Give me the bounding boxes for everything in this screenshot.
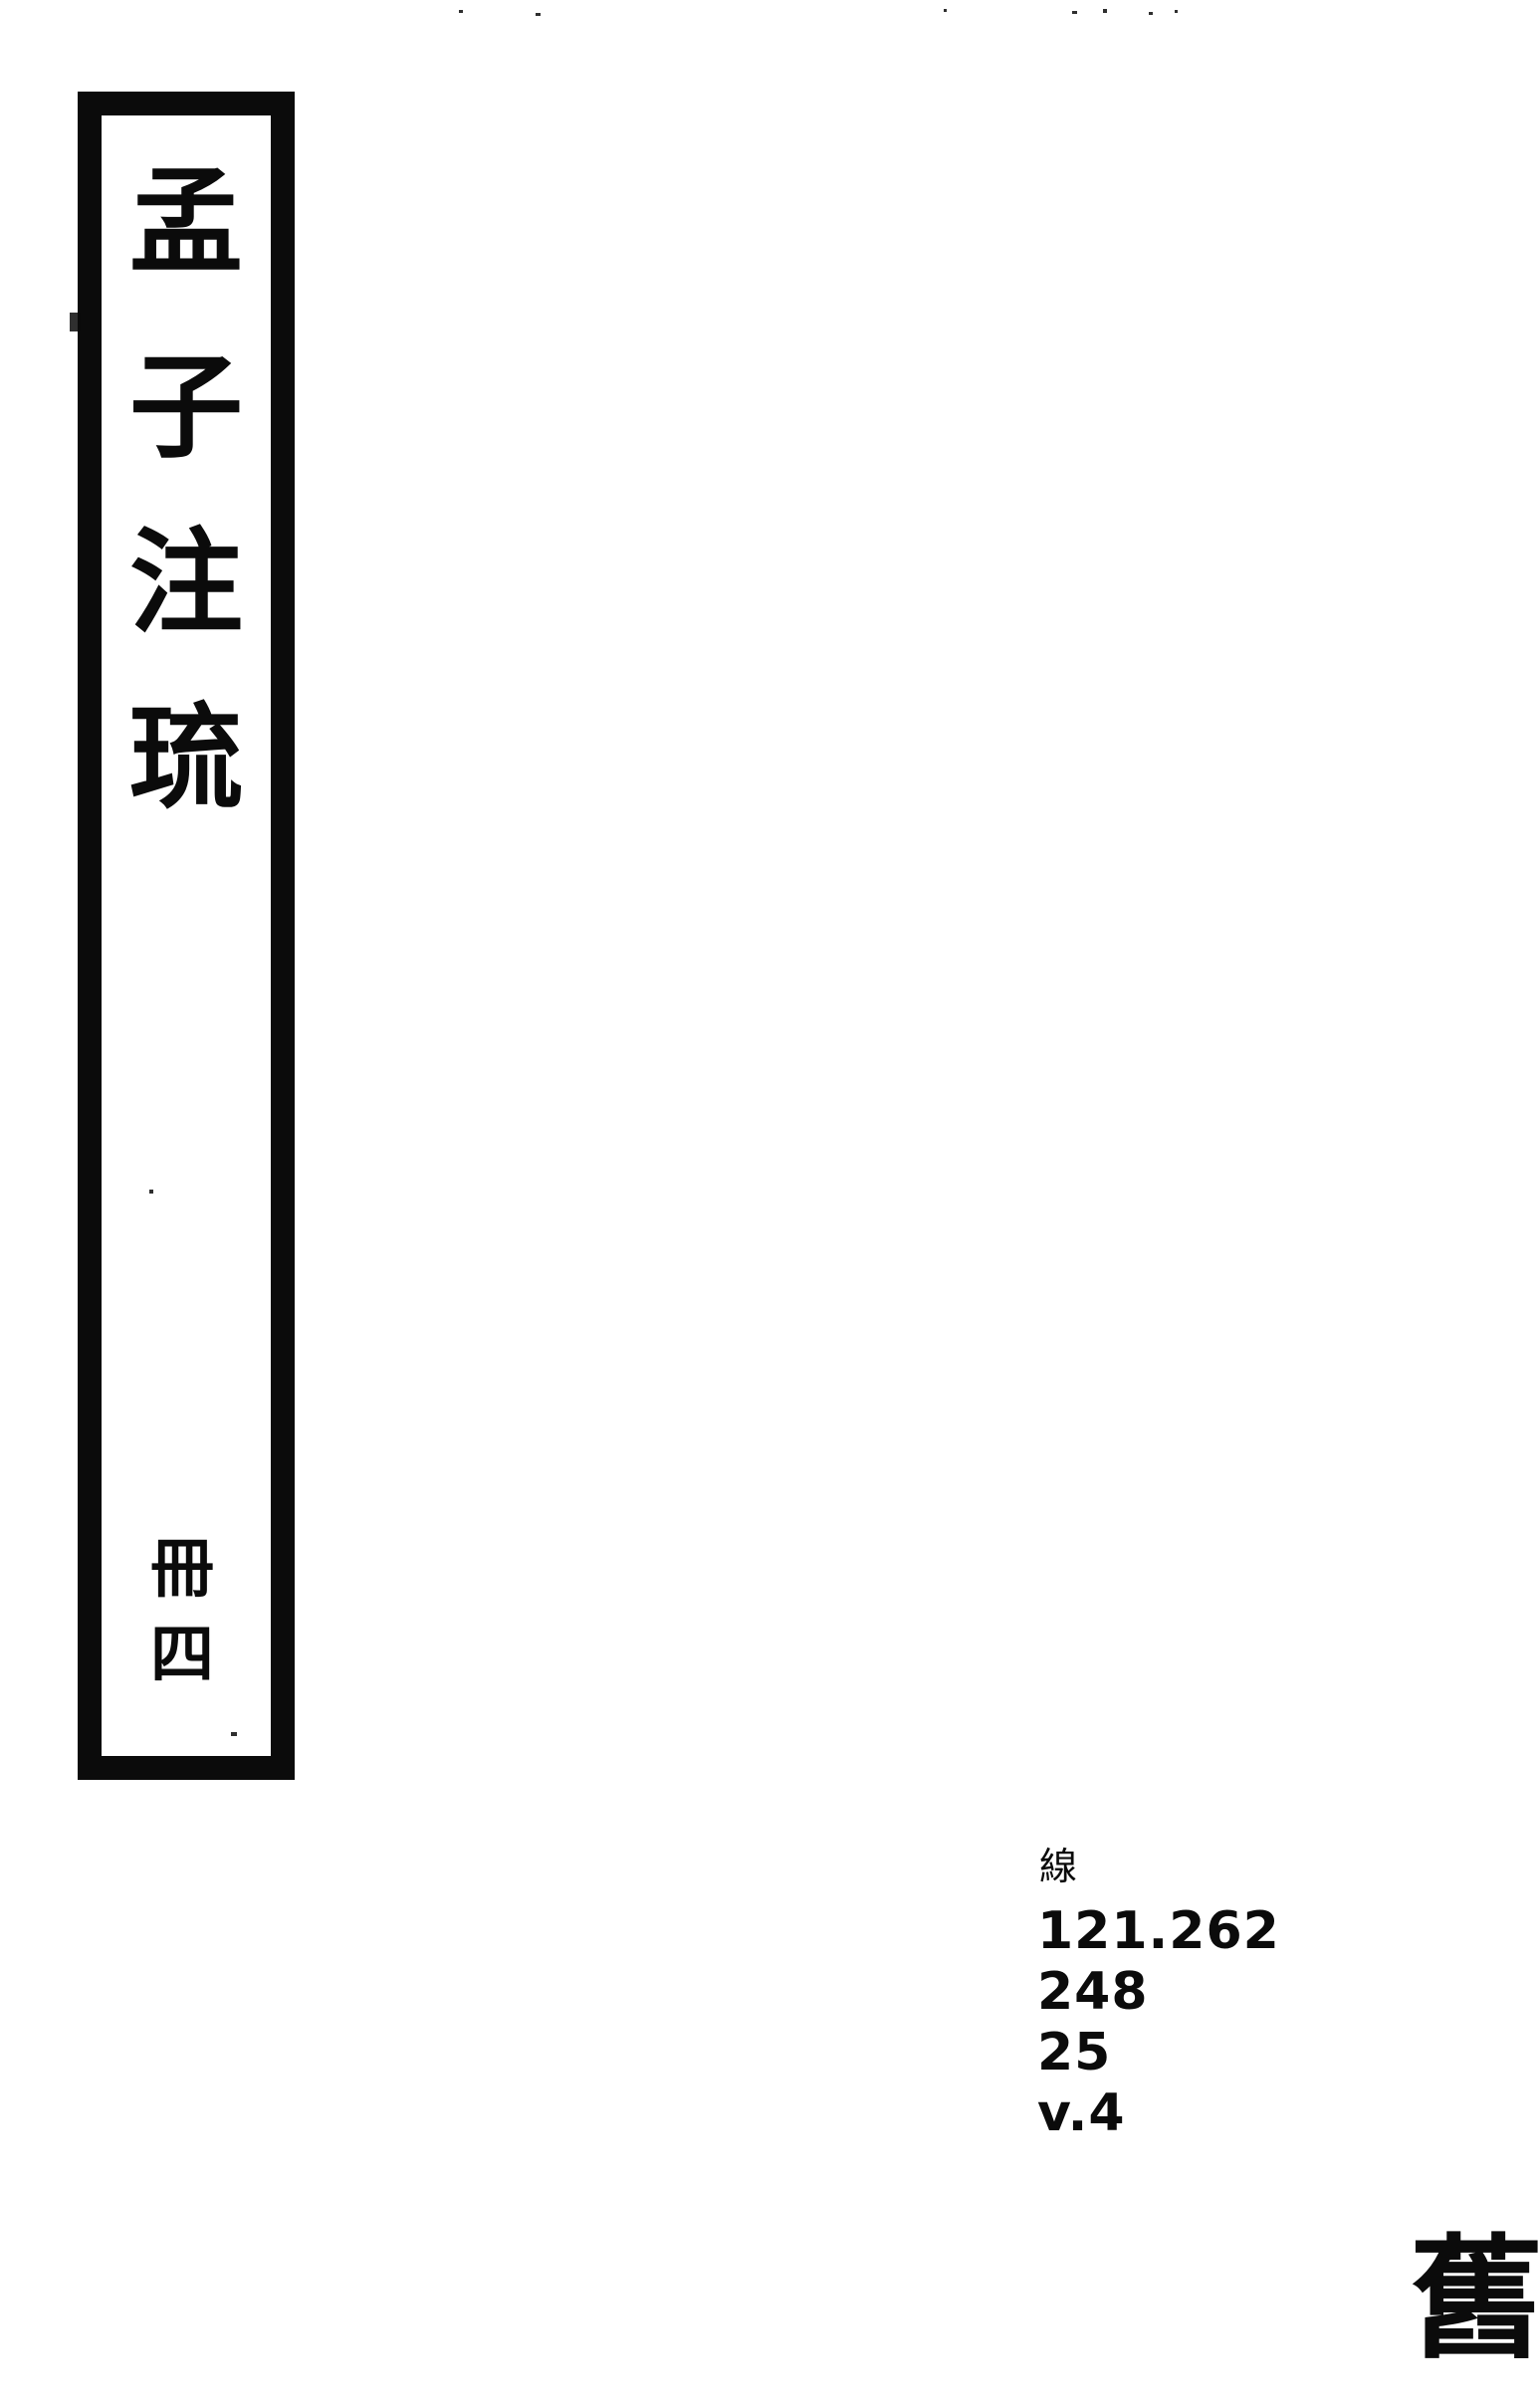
scan-speck xyxy=(149,1190,153,1194)
scan-speck xyxy=(1103,9,1107,13)
scanned-book-spine-page: 孟 子 注 琉 冊 四 線 121.262 248 25 v.4 舊 xyxy=(0,0,1540,2408)
scan-speck xyxy=(231,1732,237,1736)
call-number-block: 線 121.262 248 25 v.4 xyxy=(1037,1848,1280,2144)
spine-title-char-1: 孟 xyxy=(78,165,295,279)
spine-title-char-4: 琉 xyxy=(78,701,295,814)
call-number-line-3: 25 xyxy=(1037,2023,1280,2083)
scan-speck xyxy=(536,13,541,16)
call-number-line-2: 248 xyxy=(1037,1962,1280,2023)
scan-speck xyxy=(944,9,947,12)
scan-speck xyxy=(1072,11,1077,14)
scan-speck xyxy=(1149,12,1153,15)
volume-char-2: 四 xyxy=(74,1624,291,1687)
spine-title-char-2: 子 xyxy=(78,350,295,464)
call-number-category: 線 xyxy=(1039,1848,1280,1885)
scan-speck xyxy=(70,313,81,331)
old-collection-mark: 舊 xyxy=(1410,2232,1529,2365)
scan-speck xyxy=(1175,10,1178,13)
call-number-line-1: 121.262 xyxy=(1037,1901,1280,1962)
spine-title-char-3: 注 xyxy=(78,526,295,639)
call-number-line-4: v.4 xyxy=(1037,2083,1280,2144)
scan-speck xyxy=(459,10,463,13)
volume-char-1: 冊 xyxy=(74,1538,291,1602)
